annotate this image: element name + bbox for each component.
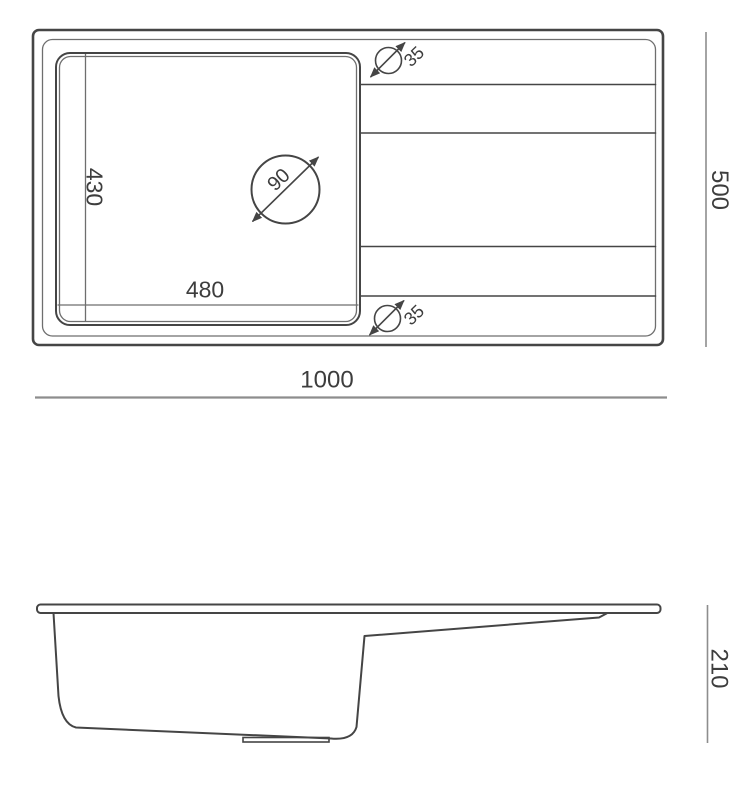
width-dimension-label: 1000 <box>300 367 353 394</box>
tap-hole-bottom-label: 35 <box>400 301 428 329</box>
side-rim-bar <box>37 605 661 614</box>
height-dimension-label: 210 <box>706 648 733 688</box>
side-drain-fitting <box>243 738 329 743</box>
depth-dimension-label: 500 <box>706 170 733 210</box>
tap-hole-bottom-circle <box>375 306 401 332</box>
sink-technical-drawing: 90 35 35 430 480 500 1000 <box>0 0 755 800</box>
drain-diameter-arrow <box>253 158 318 222</box>
side-view: 210 <box>37 605 733 744</box>
side-bowl-profile <box>54 613 607 739</box>
drainboard-grooves <box>361 85 656 297</box>
drawing-canvas: 90 35 35 430 480 500 1000 <box>0 0 755 800</box>
drain-hole: 90 <box>252 156 320 224</box>
drain-diameter-label: 90 <box>263 164 294 195</box>
top-view: 90 35 35 430 480 500 1000 <box>33 30 733 398</box>
bowl-depth-label: 430 <box>82 168 108 206</box>
tap-hole-top: 35 <box>371 42 428 76</box>
bowl-width-label: 480 <box>186 277 224 303</box>
tap-hole-top-label: 35 <box>400 42 428 70</box>
tap-hole-bottom: 35 <box>370 301 428 335</box>
top-view-outer-edge <box>33 30 663 345</box>
tap-hole-top-circle <box>376 48 402 74</box>
